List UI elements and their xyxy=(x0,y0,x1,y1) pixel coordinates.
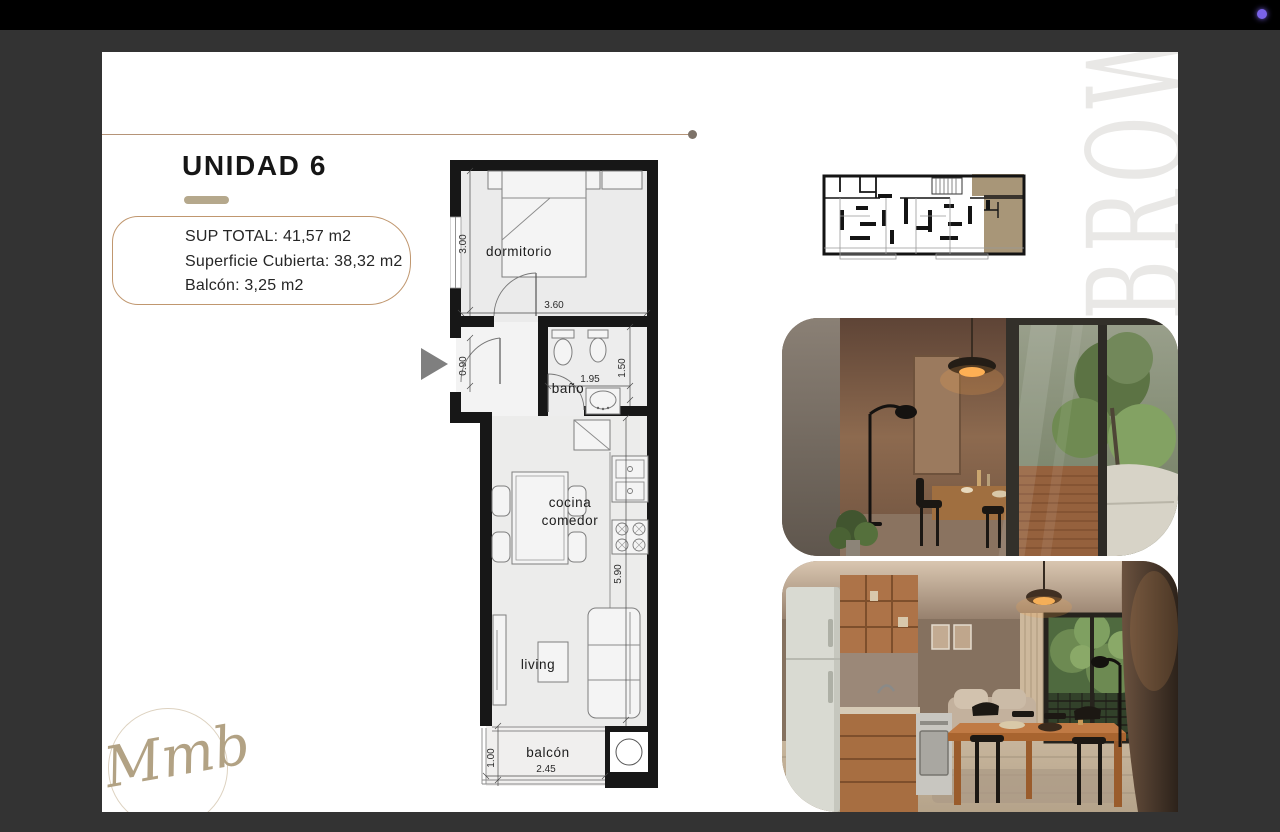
label-comedor: comedor xyxy=(542,513,599,528)
dim-balcon-width: 2.45 xyxy=(536,764,556,775)
info-superficie-cubierta: Superficie Cubierta: 38,32 m2 xyxy=(185,250,402,275)
surface-info-text: SUP TOTAL: 41,57 m2 Superficie Cubierta:… xyxy=(185,225,402,299)
dim-dorm-width: 3.60 xyxy=(544,300,564,311)
floor-plan: 3.00 3.60 0.90 1.95 1.50 5.90 1.00 2.45 … xyxy=(450,160,660,790)
page-title: UNIDAD 6 xyxy=(182,150,327,182)
title-underline xyxy=(184,196,229,204)
label-dormitorio: dormitorio xyxy=(486,244,552,259)
label-bano: baño xyxy=(552,381,584,396)
pointer-arrow-icon xyxy=(421,348,448,380)
dim-entry-width: 0.90 xyxy=(458,356,469,376)
watermark-text: BROWN xyxy=(1088,52,1178,320)
label-cocina: cocina xyxy=(549,495,592,510)
label-balcon: balcón xyxy=(526,745,569,760)
building-key-plan xyxy=(820,170,1028,262)
dim-main-depth: 5.90 xyxy=(613,564,624,584)
recording-indicator-dot xyxy=(1257,9,1267,19)
label-living: living xyxy=(521,657,555,672)
dim-bano-depth: 1.50 xyxy=(617,358,628,378)
dim-dorm-depth: 3.00 xyxy=(458,234,469,254)
render-photo-kitchen xyxy=(782,561,1178,812)
divider-end-dot xyxy=(688,130,697,139)
brochure-slide: BROWN UNIDAD 6 SUP TOTAL: 41,57 m2 Super… xyxy=(102,52,1178,812)
render-photo-dining xyxy=(782,318,1178,556)
info-sup-total: SUP TOTAL: 41,57 m2 xyxy=(185,225,402,250)
info-balcon: Balcón: 3,25 m2 xyxy=(185,274,402,299)
top-bar xyxy=(0,0,1280,30)
dim-balcon-depth: 1.00 xyxy=(486,748,497,768)
header-divider-line xyxy=(102,134,690,135)
